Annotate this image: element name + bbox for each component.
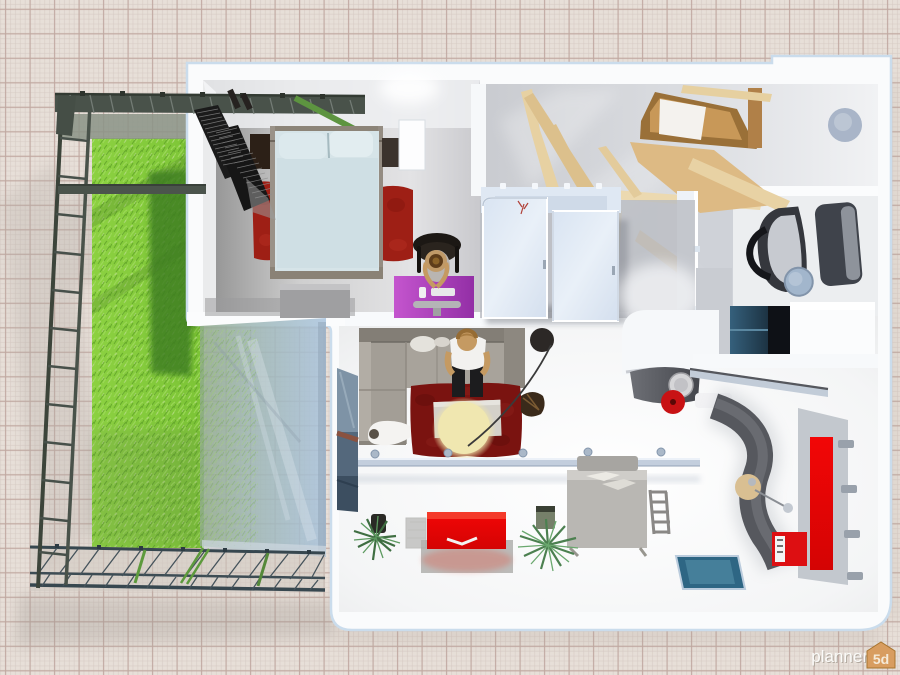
svg-text:planner: planner xyxy=(811,647,868,666)
svg-text:5d: 5d xyxy=(873,651,889,667)
